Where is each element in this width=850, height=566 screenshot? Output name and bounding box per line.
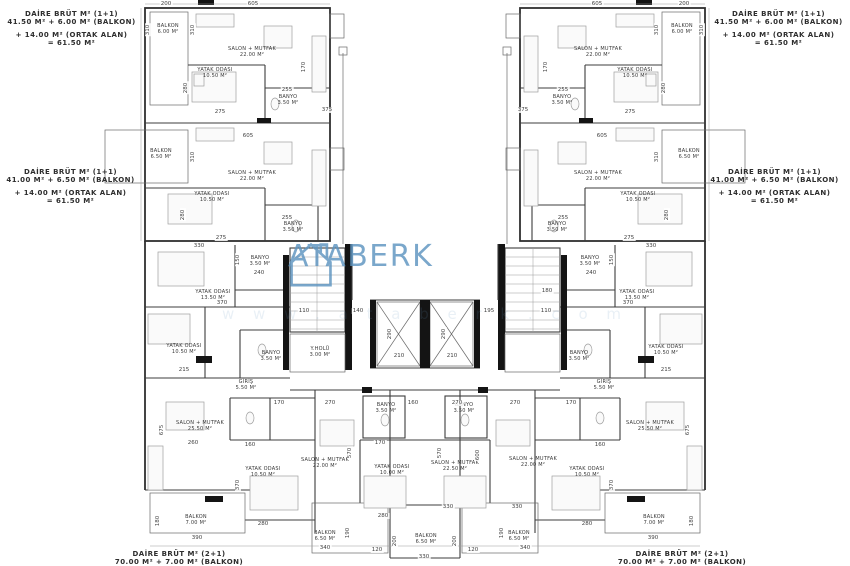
room-label: BANYO3.50 M² [283,222,304,234]
room-label: BALKON6.00 M² [671,24,693,36]
room-label: SALON + MUTFAK22.00 M² [574,47,622,59]
annotation-line: 70.00 M² + 7.00 M² (BALKON) [598,559,766,566]
dimension-label: 310 [190,151,196,164]
dimension-label: 240 [253,270,266,276]
dimension-label: 280 [180,209,186,222]
dimension-label: 160 [244,442,257,448]
annotation-line: 70.00 M² + 7.00 M² (BALKON) [95,559,263,566]
house-icon [288,239,334,289]
dimension-label: 210 [446,353,459,359]
dimension-label: 120 [371,547,384,553]
dimension-label: 605 [242,133,255,139]
dimension-label: 340 [519,545,532,551]
dimension-label: 600 [475,449,481,462]
room-label: BALKON7.00 M² [643,515,665,527]
dimension-label: 330 [442,504,455,510]
dimension-label: 280 [664,209,670,222]
room-label: SALON + MUTFAK22.00 M² [301,458,349,470]
room-label: YATAK ODASI10.50 M² [620,192,655,204]
dimension-label: 200 [452,535,458,548]
dimension-label: 280 [661,82,667,95]
dimension-label: 390 [191,535,204,541]
dimension-label: 375 [321,107,334,113]
dimension-label: 605 [247,1,260,7]
dimension-label: 110 [298,308,311,314]
dimension-label: 310 [654,151,660,164]
room-label: YATAK ODASI10.50 M² [245,467,280,479]
room-label: BALKON6.50 M² [415,534,437,546]
dimension-label: 180 [155,515,161,528]
room-label: SALON + MUTFAK22.00 M² [509,457,557,469]
room-label: SALON + MUTFAK25.50 M² [626,421,674,433]
room-label: BALKON6.50 M² [314,531,336,543]
room-label: SALON + MUTFAK22.00 M² [228,47,276,59]
room-label: BANYO3.50 M² [250,256,271,268]
dimension-label: 270 [324,400,337,406]
room-label: SALON + MUTFAK25.50 M² [176,421,224,433]
room-label: YATAK ODASI10.50 M² [197,68,232,80]
dimension-label: 160 [594,442,607,448]
dimension-label: 240 [585,270,598,276]
room-label: BANYO3.50 M² [278,95,299,107]
annotation-line: = 61.50 M² [0,198,141,206]
room-label: BANYO3.50 M² [261,351,282,363]
room-label: BALKON6.50 M² [508,531,530,543]
room-label: SALON + MUTFAK22.00 M² [228,171,276,183]
room-label: BANYO3.50 M² [580,256,601,268]
room-label: SALON + MUTFAK22.00 M² [574,171,622,183]
annotation-line: 41.00 M² + 6.50 M² (BALKON) [704,177,845,185]
watermark-url: w w w . a t a b e r k . c o m [110,305,740,323]
dimension-label: 280 [581,521,594,527]
room-label: YATAK ODASI10.50 M² [194,192,229,204]
dimension-label: 150 [235,254,241,267]
dimension-label: 605 [591,1,604,7]
room-label: Y.HOLÜ3.00 M² [310,347,331,359]
dimension-label: 210 [393,353,406,359]
dimension-label: 255 [557,215,570,221]
room-label: BALKON7.00 M² [185,515,207,527]
dimension-label: 180 [541,288,554,294]
dimension-label: 200 [678,1,691,7]
dimension-label: 190 [499,527,505,540]
dimension-label: 170 [301,61,307,74]
dimension-label: 370 [235,479,241,492]
dimension-label: 160 [407,400,420,406]
dimension-label: 290 [441,328,447,341]
dimension-label: 280 [183,82,189,95]
room-label: BALKON6.50 M² [678,149,700,161]
dimension-label: 170 [565,400,578,406]
dimension-label: 170 [273,400,286,406]
annotation-top-left: DAİRE BRÜT M² (1+1) 41.50 M² + 6.00 M² (… [0,11,143,47]
room-label: YATAK ODASI10.50 M² [648,345,683,357]
room-label: BANYO3.50 M² [376,403,397,415]
dimension-label: 570 [347,447,353,460]
dimension-label: 275 [624,109,637,115]
dimension-label: 190 [345,527,351,540]
dimension-label: 370 [609,479,615,492]
watermark: ATABERK [288,239,433,274]
room-label: YATAK ODASI10.50 M² [569,467,604,479]
room-label: GİRİŞ5.50 M² [236,380,257,392]
dimension-label: 170 [374,440,387,446]
dimension-label: 310 [190,24,196,37]
annotation-line: = 61.50 M² [707,40,850,48]
floor-plan-canvas: ATABERK w w w . a t a b e r k . c o m DA… [0,0,850,566]
dimension-label: 200 [392,535,398,548]
dimension-label: 390 [647,535,660,541]
annotation-line: 41.50 M² + 6.00 M² (BALKON) [0,19,143,27]
dimension-label: 370 [622,300,635,306]
dimension-label: 200 [160,1,173,7]
room-label: YATAK ODASI10.00 M² [374,465,409,477]
dimension-label: 180 [689,515,695,528]
dimension-label: 370 [216,300,229,306]
room-label: YATAK ODASI10.50 M² [617,68,652,80]
dimension-label: 260 [187,440,200,446]
dimension-label: 140 [352,308,365,314]
dimension-label: 170 [543,61,549,74]
dimension-label: 120 [467,547,480,553]
annotation-line: 41.00 M² + 6.50 M² (BALKON) [0,177,141,185]
dimension-label: 270 [509,400,522,406]
dimension-label: 270 [451,400,464,406]
room-label: BANYO3.50 M² [552,95,573,107]
annotation-line: = 61.50 M² [704,198,845,206]
annotation-bottom-left: DAİRE BRÜT M² (2+1) 70.00 M² + 7.00 M² (… [95,551,263,566]
dimension-label: 255 [281,215,294,221]
dimension-label: 675 [159,424,165,437]
dimension-label: 375 [517,107,530,113]
dimension-label: 330 [645,243,658,249]
dimension-label: 275 [215,235,228,241]
dimension-label: 275 [214,109,227,115]
dimension-label: 150 [609,254,615,267]
dimension-label: 255 [557,87,570,93]
dimension-label: 215 [660,367,673,373]
room-label: GİRİŞ5.50 M² [594,380,615,392]
dimension-label: 330 [511,504,524,510]
dimension-label: 330 [193,243,206,249]
dimension-label: 255 [281,87,294,93]
annotation-mid-left: DAİRE BRÜT M² (1+1) 41.00 M² + 6.50 M² (… [0,169,141,205]
room-label: BALKON6.50 M² [150,149,172,161]
dimension-label: 340 [319,545,332,551]
dimension-label: 215 [178,367,191,373]
floor-plan-drawing [0,0,850,566]
dimension-label: 195 [483,308,496,314]
dimension-label: 310 [654,24,660,37]
room-label: YATAK ODASI10.50 M² [166,344,201,356]
dimension-label: 570 [437,447,443,460]
dimension-label: 310 [699,24,705,37]
dimension-label: 280 [257,521,270,527]
annotation-top-right: DAİRE BRÜT M² (1+1) 41.50 M² + 6.00 M² (… [707,11,850,47]
annotation-line: 41.50 M² + 6.00 M² (BALKON) [707,19,850,27]
dimension-label: 280 [377,513,390,519]
annotation-bottom-right: DAİRE BRÜT M² (2+1) 70.00 M² + 7.00 M² (… [598,551,766,566]
room-label: BANYO3.50 M² [547,222,568,234]
dimension-label: 290 [387,328,393,341]
dimension-label: 605 [596,133,609,139]
room-label: BANYO3.50 M² [569,351,590,363]
dimension-label: 330 [418,554,431,560]
annotation-line: = 61.50 M² [0,40,143,48]
room-label: SALON + MUTFAK22.50 M² [431,461,479,473]
dimension-label: 310 [145,24,151,37]
dimension-label: 675 [685,424,691,437]
dimension-label: 275 [623,235,636,241]
room-label: BALKON6.00 M² [157,24,179,36]
annotation-mid-right: DAİRE BRÜT M² (1+1) 41.00 M² + 6.50 M² (… [704,169,845,205]
dimension-label: 110 [540,308,553,314]
